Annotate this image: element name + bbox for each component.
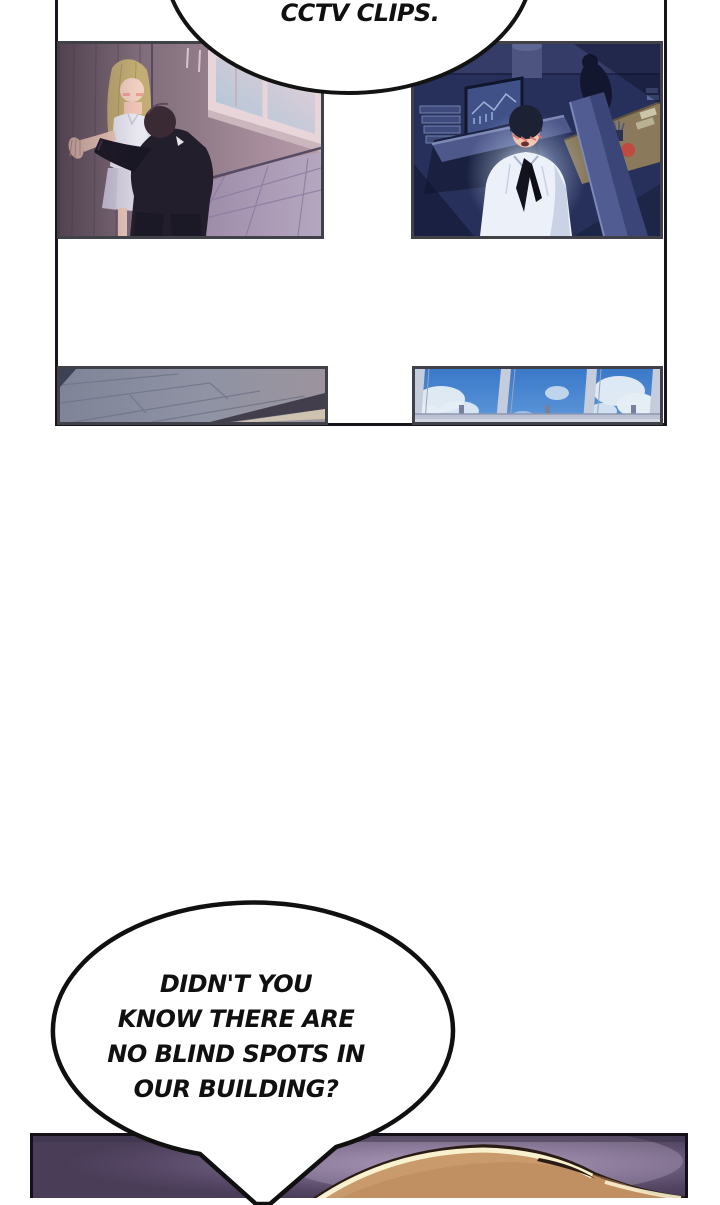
speech-line: OUR BUILDING?: [48, 1072, 424, 1107]
speech-text-top: CCTV CLIPS.: [160, 0, 560, 26]
webtoon-page: { "page": { "width": 720, "height": 1198…: [0, 0, 720, 1198]
speech-bubble-bottom: DIDN'T YOU KNOW THERE ARE NO BLIND SPOTS…: [40, 895, 480, 1205]
panel-windows-sky-art: [415, 369, 660, 422]
window-sill: [415, 414, 660, 422]
speech-bubble-top: CCTV CLIPS.: [150, 0, 550, 110]
panel-ceiling: [57, 366, 328, 425]
panel-windows-sky: [412, 366, 663, 425]
speech-line: NO BLIND SPOTS IN: [48, 1037, 424, 1072]
speech-line: KNOW THERE ARE: [48, 1002, 424, 1037]
speech-line: DIDN'T YOU: [48, 967, 424, 1002]
speech-text-bottom: DIDN'T YOU KNOW THERE ARE NO BLIND SPOTS…: [48, 967, 424, 1107]
panel-ceiling-art: [60, 369, 325, 422]
